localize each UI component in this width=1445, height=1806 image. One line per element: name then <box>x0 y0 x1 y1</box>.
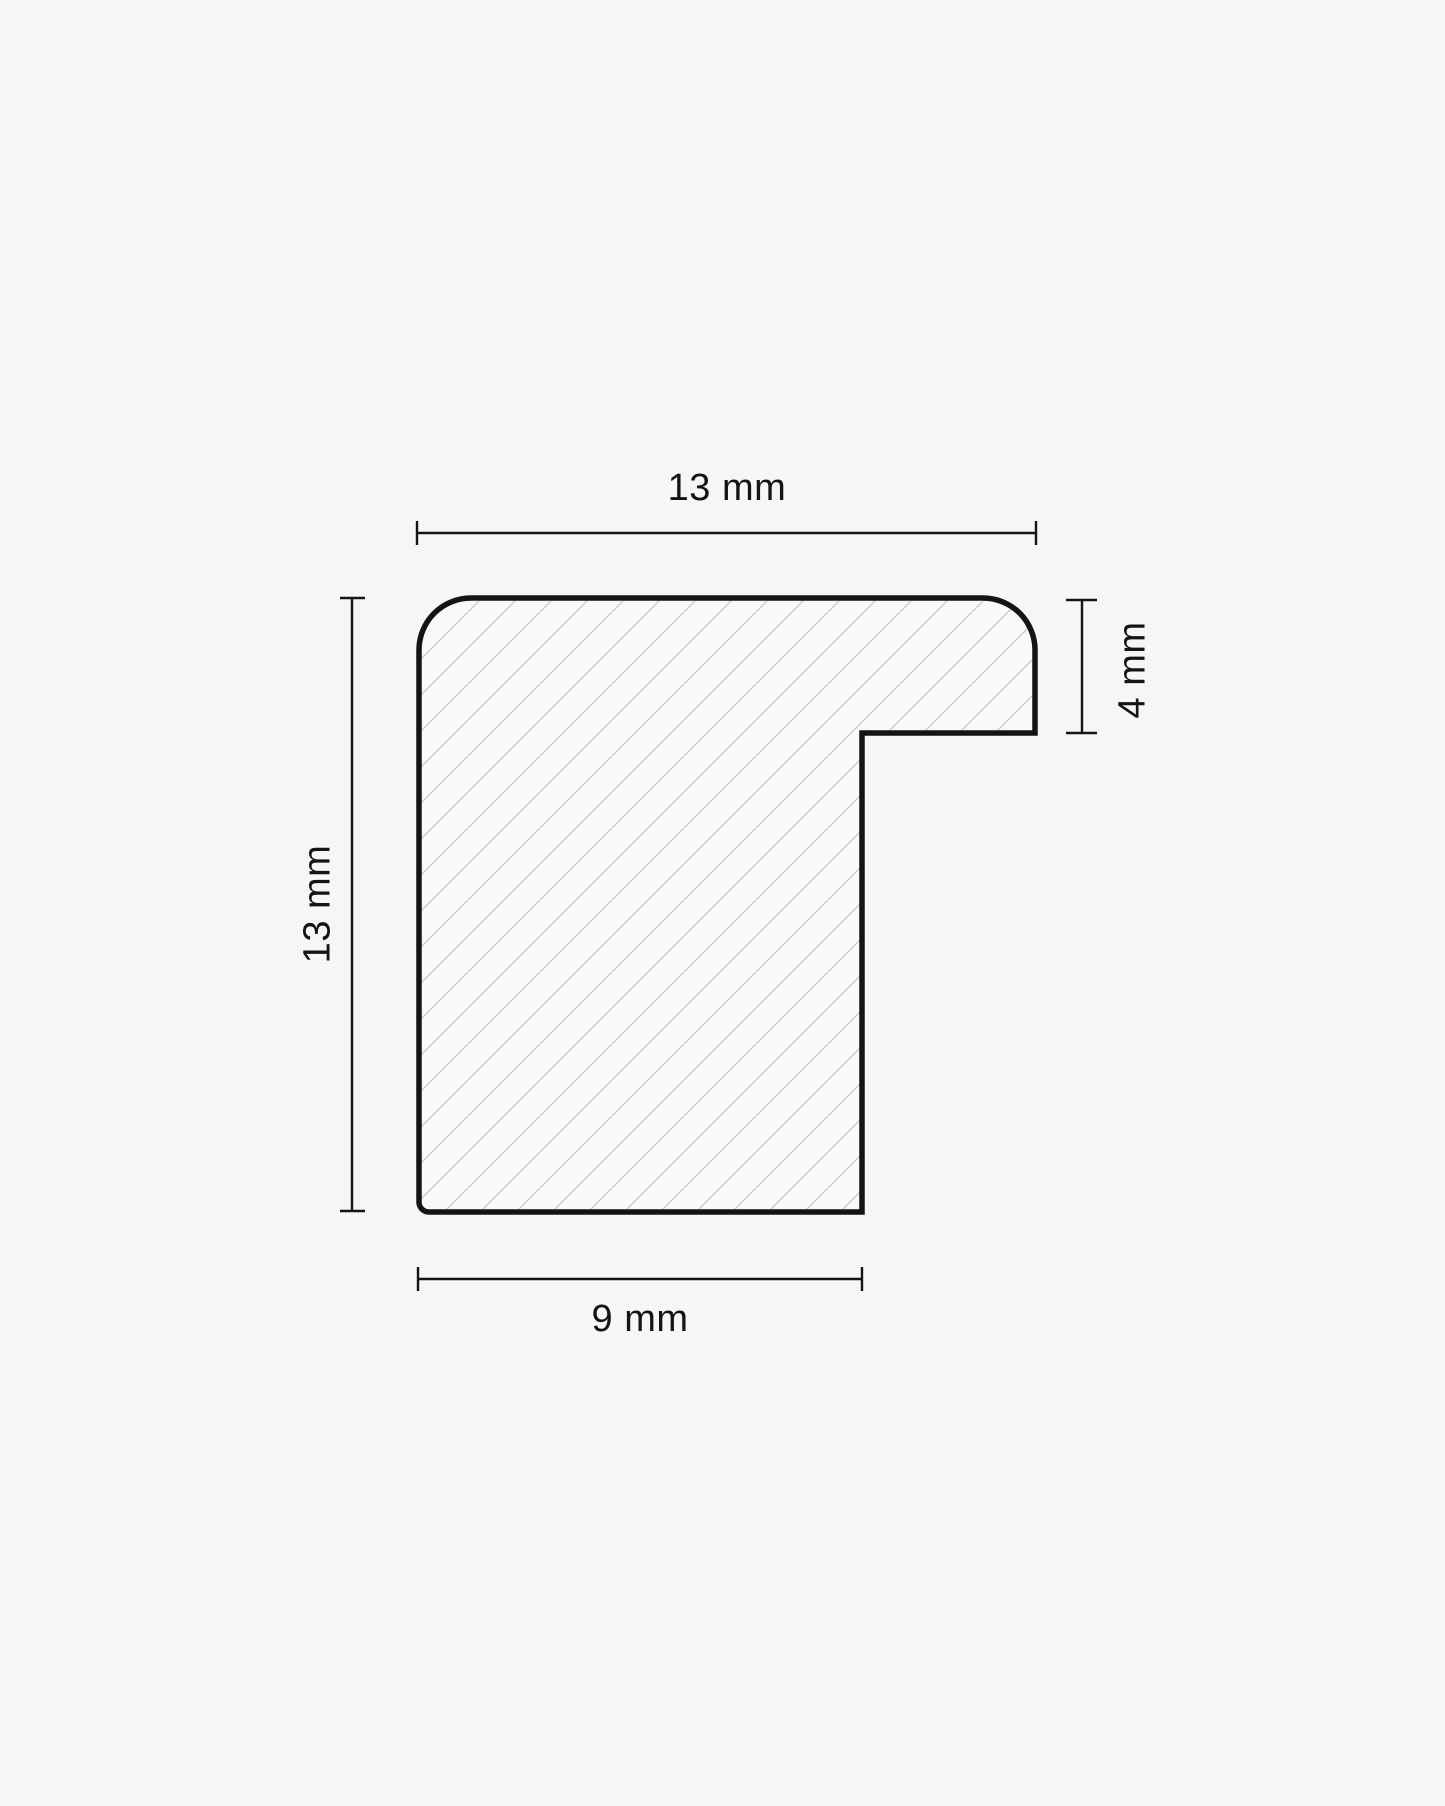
dimension-right-label: 4 mm <box>1111 622 1153 719</box>
dimension-left-label: 13 mm <box>296 845 338 964</box>
dimension-right: 4 mm <box>1066 600 1153 733</box>
dimension-bottom-label: 9 mm <box>592 1298 689 1340</box>
profile-cross-section-diagram: 13 mm 13 mm 4 mm 9 mm <box>0 0 1445 1806</box>
dimension-top: 13 mm <box>417 467 1036 545</box>
dimension-left: 13 mm <box>296 598 365 1211</box>
diagram-canvas: 13 mm 13 mm 4 mm 9 mm <box>0 0 1445 1806</box>
dimension-top-label: 13 mm <box>668 467 787 509</box>
dimension-bottom: 9 mm <box>418 1267 862 1340</box>
frame-profile-outline <box>419 598 1035 1212</box>
